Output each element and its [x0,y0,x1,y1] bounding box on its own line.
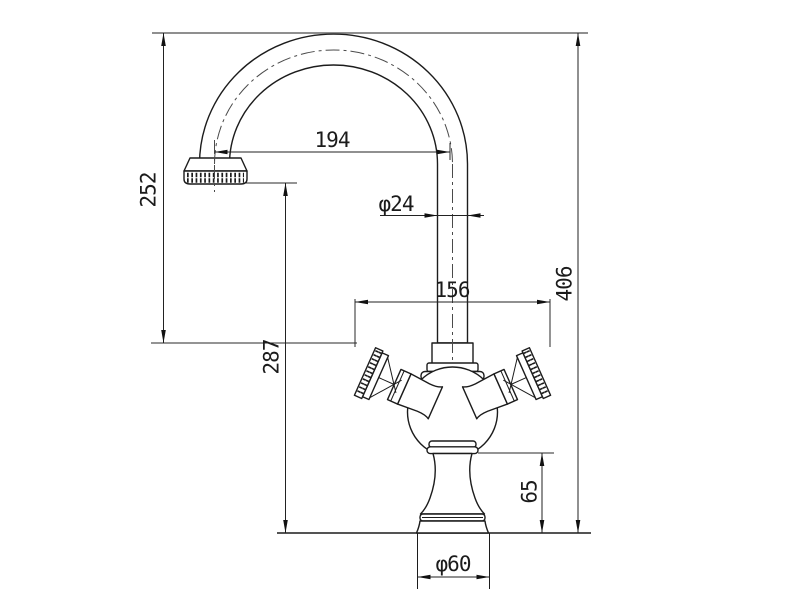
faucet-body [184,34,551,589]
dim-spout-height-252: 252 [136,33,165,343]
technical-drawing-canvas: 252 406 287 65 194 [0,0,800,600]
arrow-inward-left [468,213,481,218]
dim-label-252: 252 [136,173,160,208]
arrow-down [576,520,581,533]
dim-base-height-65: 65 [517,453,544,533]
dim-overall-height-406: 406 [552,33,580,533]
arrow-up [540,453,545,466]
lower-ring-bottom [427,447,478,454]
aerator-cap [184,158,247,171]
arrow-up [161,33,166,46]
base-flare [417,521,489,533]
dim-base-diameter-60: φ60 [418,552,490,579]
dim-label-156: 156 [435,278,470,302]
arrow-right [477,575,490,580]
dim-label-phi24: φ24 [379,192,414,216]
arrow-down [161,330,166,343]
gooseneck-spout [200,34,468,343]
arrow-left [355,300,368,305]
aerator [184,158,247,184]
dim-label-65: 65 [517,480,541,503]
arrow-down [540,520,545,533]
arrow-up [283,183,288,196]
arrow-down [283,520,288,533]
aerator-knurl-band [184,171,247,184]
arrow-left [418,575,431,580]
dim-label-194: 194 [315,128,350,152]
dim-label-406: 406 [552,266,576,301]
dim-outlet-height-287: 287 [259,183,287,533]
trumpet-column [421,454,485,515]
faucet-dimension-drawing: 252 406 287 65 194 [0,0,800,600]
arrow-up [576,33,581,46]
dim-spout-reach-194: 194 [215,128,451,160]
dim-label-287: 287 [259,339,283,374]
dimensions: 252 406 287 65 194 [136,33,580,579]
arrow-inward-right [425,213,438,218]
dim-label-phi60: φ60 [436,552,471,576]
arrow-right [537,300,550,305]
